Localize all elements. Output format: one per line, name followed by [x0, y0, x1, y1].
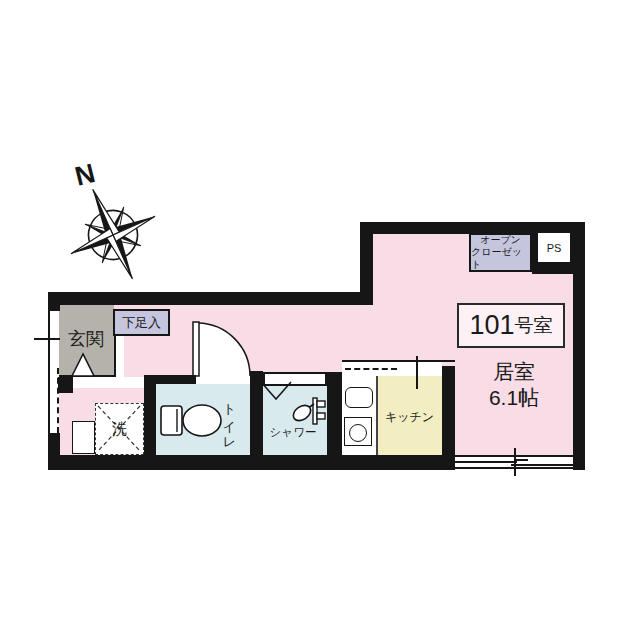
compass-rose-icon: N	[55, 148, 175, 300]
window-center-tick	[514, 448, 516, 476]
entrance-label: 玄関	[59, 328, 113, 350]
wall-shower-kitchen	[327, 372, 342, 455]
shower-label: シャワー	[261, 424, 325, 440]
wall-kitchen-living	[442, 366, 455, 455]
compass-north-label: N	[72, 158, 98, 192]
living-room-label: 居室	[455, 360, 573, 384]
room-number-suffix: 号室	[515, 313, 553, 339]
wall-top-left	[48, 292, 373, 305]
wall-toilet-top	[144, 375, 196, 384]
wall-entrance-stub	[58, 377, 73, 393]
wall-left-top	[48, 292, 60, 311]
washing-machine-space: 洗	[95, 403, 144, 455]
kitchen-opening-dashed-line	[345, 368, 397, 370]
kitchen-opening-tick	[416, 356, 418, 389]
sink-icon	[345, 387, 373, 408]
window-pane-line-left	[455, 461, 517, 463]
floor-plan: N 玄関 下足入 洗 トイレ	[0, 0, 640, 640]
entrance-step-triangle-icon	[70, 352, 96, 378]
toilet-label: トイレ	[221, 389, 237, 451]
wall-step	[360, 222, 373, 305]
door-swing-icon	[190, 318, 254, 381]
open-closet-label-line1: オープン	[480, 234, 521, 247]
wall-left-bottom	[48, 433, 60, 470]
pipe-space-box: PS	[537, 232, 571, 263]
window-pane-line-right	[511, 464, 573, 466]
open-closet-label-line2: クローゼット	[471, 246, 530, 271]
washer-label: 洗	[96, 404, 143, 454]
entrance-step-strip	[73, 377, 144, 388]
open-closet-box: オープン クローゼット	[469, 233, 532, 272]
wall-laundry-toilet	[144, 375, 156, 455]
entrance-floor-cabinet	[72, 421, 95, 454]
living-room-size: 6.1帖	[455, 386, 573, 410]
stove-burner-icon	[349, 424, 367, 442]
wall-bottom	[48, 455, 455, 470]
kitchen-label: キッチン	[377, 409, 442, 425]
entrance-door-tick	[34, 338, 60, 340]
room-number: 101	[469, 310, 514, 341]
toilet-icon	[158, 400, 228, 442]
shower-door-swing-mark	[258, 380, 294, 402]
room-number-box: 101号室	[457, 303, 565, 348]
wall-toilet-shower	[250, 371, 263, 455]
shoe-storage-box: 下足入	[113, 309, 170, 336]
window-center-tick-h	[516, 459, 528, 461]
stove-icon	[344, 417, 372, 446]
entrance-hall-step	[114, 336, 124, 377]
